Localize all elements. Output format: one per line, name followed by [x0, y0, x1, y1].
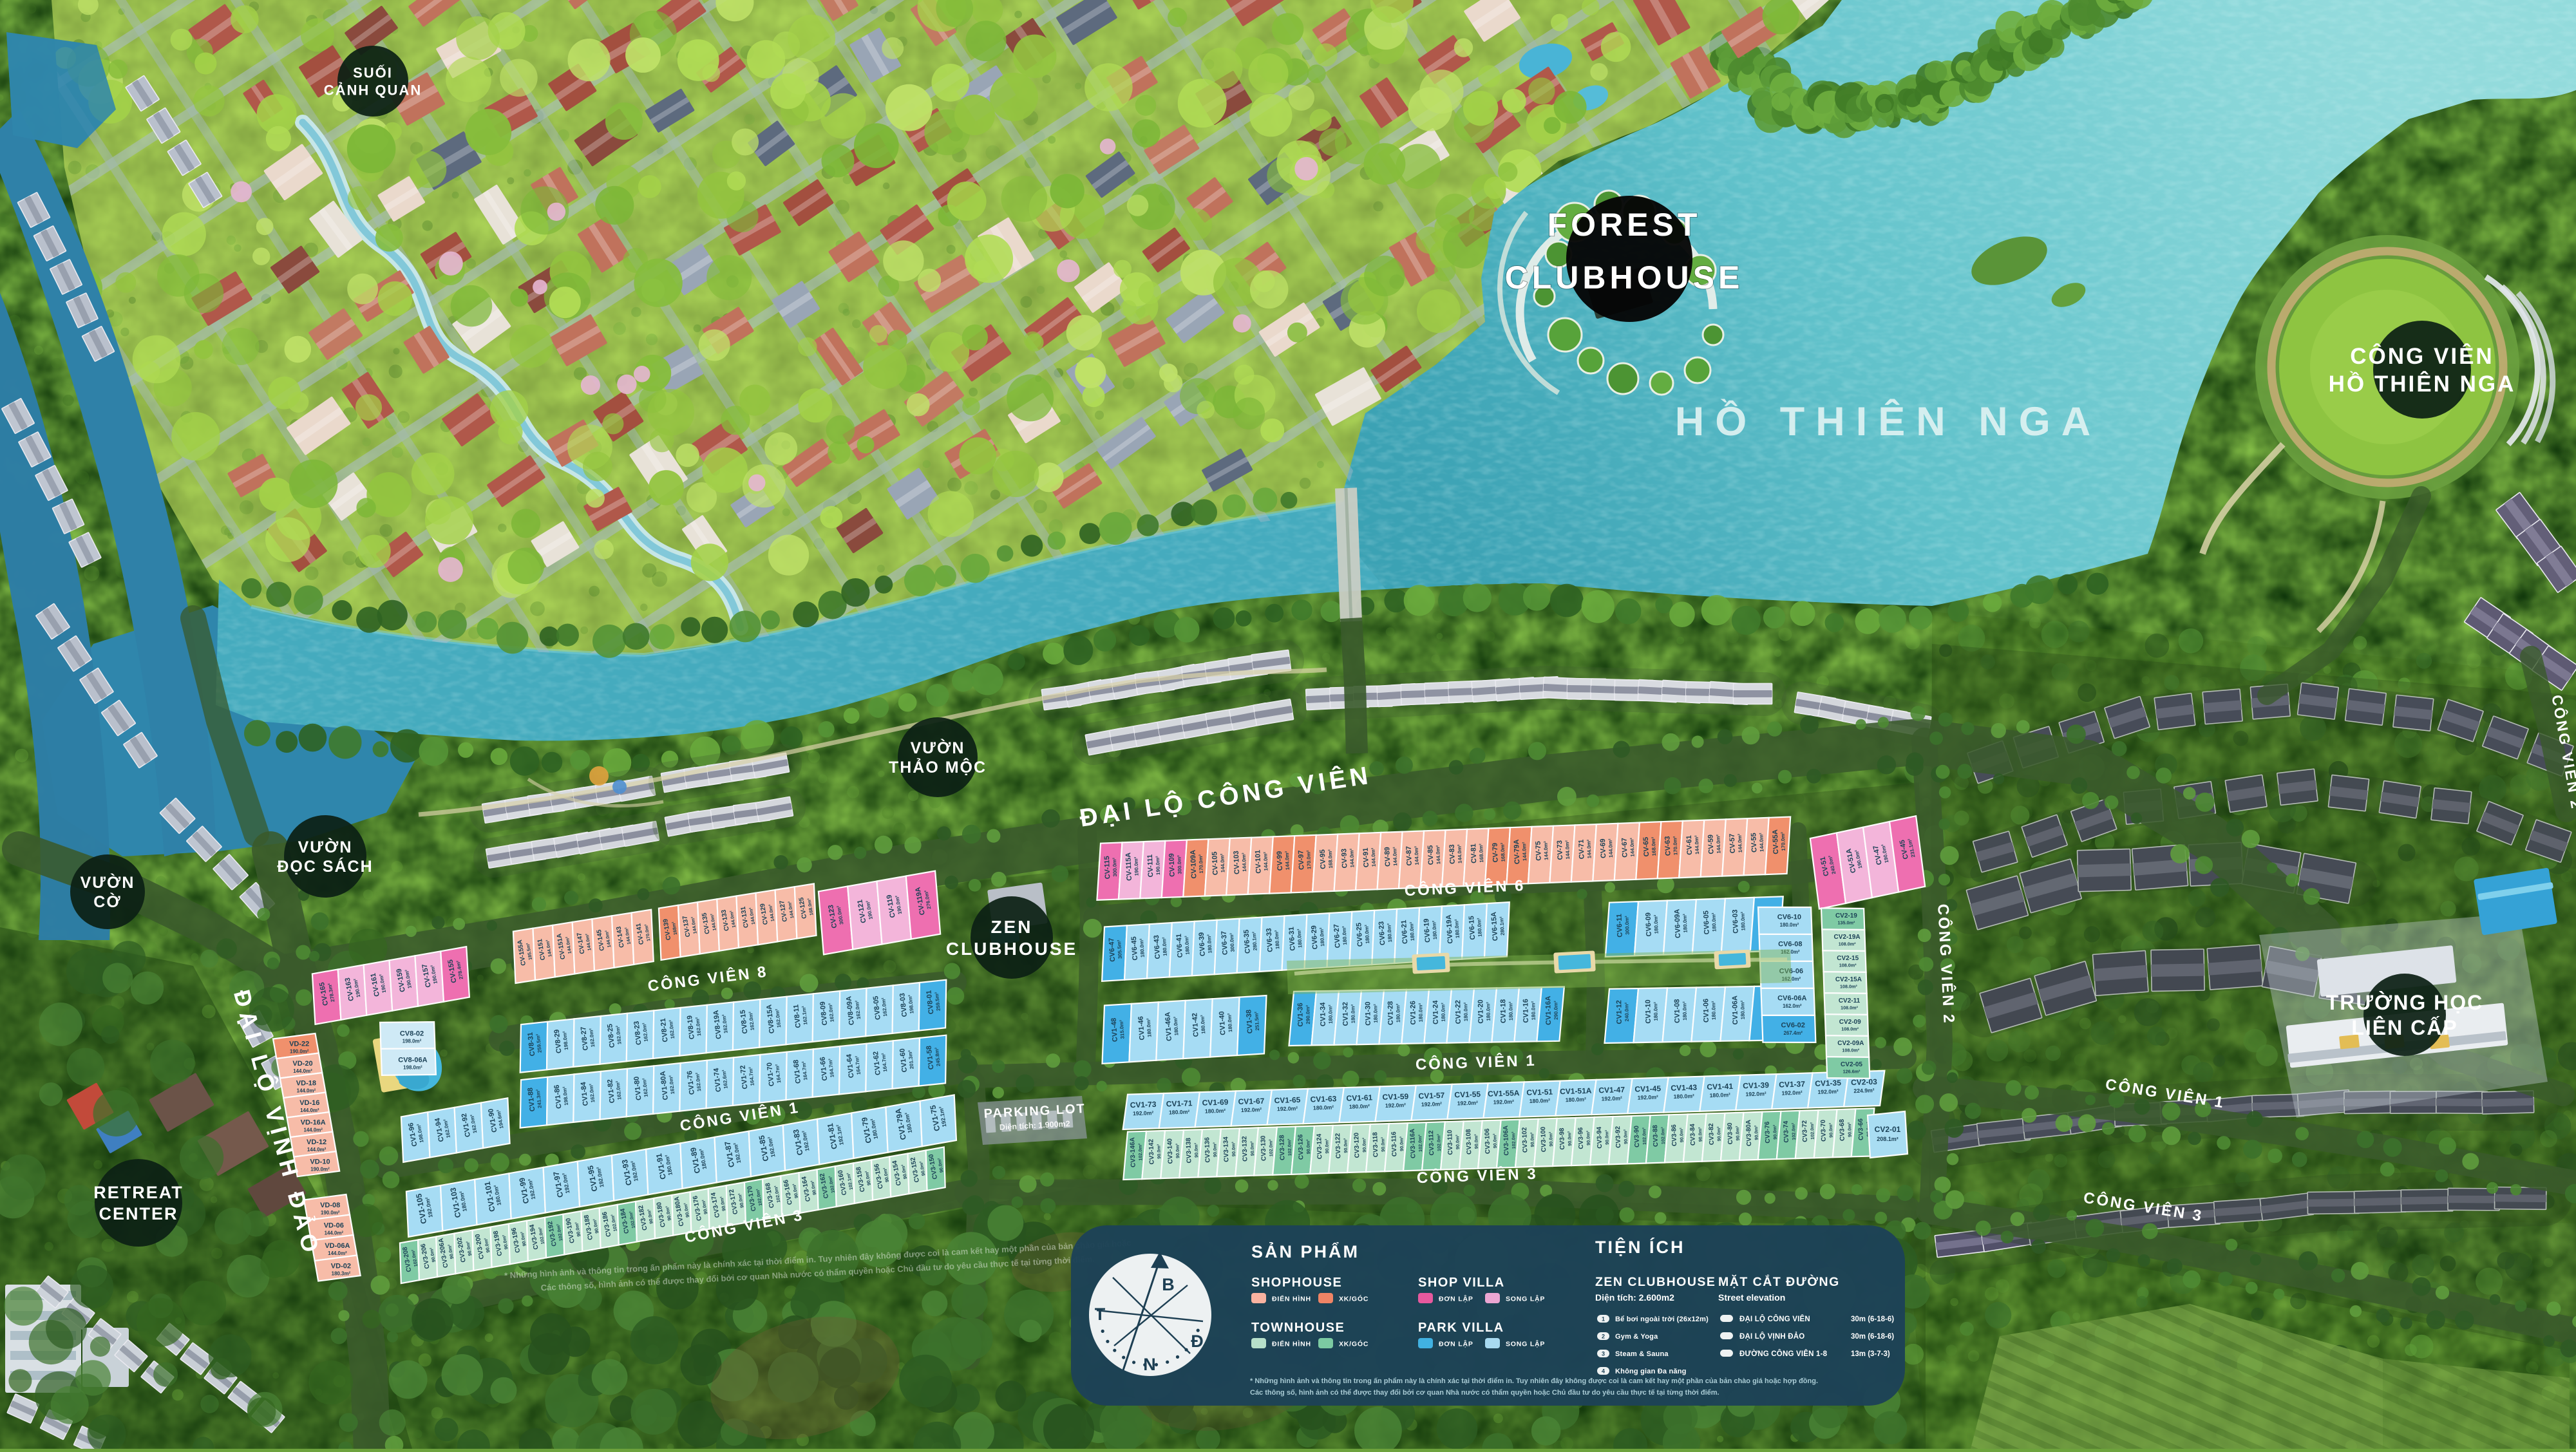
svg-text:180.0m²: 180.0m²: [1681, 1001, 1688, 1021]
svg-text:180.0m²: 180.0m²: [1463, 1002, 1469, 1021]
svg-text:CV-57: CV-57: [1728, 833, 1737, 853]
svg-text:102.0m²: 102.0m²: [1660, 1127, 1666, 1145]
svg-text:180.0m²: 180.0m²: [1327, 1004, 1334, 1024]
svg-text:108.0m²: 108.0m²: [1842, 1047, 1859, 1053]
svg-text:CV3-90: CV3-90: [1633, 1125, 1641, 1147]
svg-text:102.0m²: 102.0m²: [1417, 1134, 1423, 1152]
svg-text:13m (3-7-3): 13m (3-7-3): [1851, 1350, 1890, 1358]
svg-text:144.0m²: 144.0m²: [1349, 848, 1355, 867]
svg-text:* Những hình ảnh và thông tin: * Những hình ảnh và thông tin trong ấn p…: [1250, 1377, 1818, 1385]
svg-text:251.5m²: 251.5m²: [1253, 1012, 1260, 1031]
svg-text:XK/GÓC: XK/GÓC: [1339, 1340, 1368, 1348]
svg-text:CV-67: CV-67: [1621, 838, 1629, 858]
svg-text:CV-109A: CV-109A: [1189, 850, 1198, 879]
svg-text:ĐƠN LẬP: ĐƠN LẬP: [1439, 1295, 1473, 1303]
svg-text:TRƯỜNG HỌC: TRƯỜNG HỌC: [2326, 991, 2484, 1014]
svg-text:CV3-116A: CV3-116A: [1409, 1129, 1417, 1158]
svg-text:180.0m²: 180.0m²: [1529, 1097, 1551, 1104]
svg-text:192.0m²: 192.0m²: [1601, 1095, 1622, 1102]
svg-text:CV6-19: CV6-19: [1423, 918, 1432, 943]
svg-text:126.6m²: 126.6m²: [1843, 1068, 1861, 1074]
svg-text:CV1-59: CV1-59: [1382, 1092, 1408, 1102]
svg-text:CV2-11: CV2-11: [1839, 997, 1861, 1004]
svg-text:CV2-05: CV2-05: [1841, 1061, 1862, 1068]
svg-text:CV-69: CV-69: [1599, 838, 1607, 858]
svg-text:190.0m²: 190.0m²: [290, 1049, 309, 1055]
svg-text:102.0m²: 102.0m²: [1435, 1133, 1442, 1151]
svg-text:180.0m²: 180.0m²: [1200, 1015, 1207, 1034]
svg-text:VD-22: VD-22: [289, 1041, 309, 1048]
svg-text:CẢNH QUAN: CẢNH QUAN: [324, 82, 422, 98]
svg-text:CV3-82: CV3-82: [1708, 1123, 1716, 1146]
svg-text:CV1-51A: CV1-51A: [1560, 1086, 1592, 1097]
svg-text:90.0m²: 90.0m²: [1398, 1136, 1405, 1151]
svg-text:CV1-16A: CV1-16A: [1544, 995, 1553, 1024]
svg-text:180.0m²: 180.0m²: [1530, 1001, 1537, 1020]
svg-text:CV-71: CV-71: [1578, 839, 1586, 859]
svg-text:180.0m²: 180.0m²: [1673, 1093, 1694, 1100]
svg-text:VD-18: VD-18: [296, 1080, 316, 1088]
svg-text:CV-85: CV-85: [1426, 845, 1435, 865]
svg-text:168.0m²: 168.0m²: [1478, 844, 1484, 863]
svg-text:CV3-80: CV3-80: [1727, 1122, 1734, 1145]
svg-text:170.0m²: 170.0m²: [1672, 836, 1678, 855]
svg-text:180.0m²: 180.0m²: [1341, 926, 1348, 945]
svg-text:CV3-106: CV3-106: [1484, 1128, 1492, 1154]
svg-text:CV1-28: CV1-28: [1387, 1001, 1395, 1026]
svg-text:192.0m²: 192.0m²: [1745, 1090, 1766, 1097]
svg-text:108.0m²: 108.0m²: [1839, 941, 1856, 947]
svg-text:VD-12: VD-12: [307, 1138, 327, 1146]
svg-text:VD-02: VD-02: [331, 1263, 351, 1270]
svg-text:CV3-86: CV3-86: [1671, 1124, 1678, 1147]
svg-text:CV1-34: CV1-34: [1319, 1002, 1327, 1026]
svg-text:CV-87: CV-87: [1405, 846, 1414, 866]
svg-text:190.0m²: 190.0m²: [310, 1167, 330, 1173]
svg-text:102.0m²: 102.0m²: [1137, 1143, 1144, 1161]
svg-text:TIỆN ÍCH: TIỆN ÍCH: [1595, 1237, 1685, 1257]
svg-text:TOWNHOUSE: TOWNHOUSE: [1251, 1321, 1345, 1335]
svg-text:144.0m²: 144.0m²: [307, 1147, 327, 1153]
svg-text:CV8-06A: CV8-06A: [398, 1057, 427, 1064]
svg-text:CV6-31: CV6-31: [1287, 927, 1296, 951]
svg-text:CV3-92: CV3-92: [1615, 1126, 1622, 1148]
svg-text:Diện tích: 2.600m2: Diện tích: 2.600m2: [1595, 1292, 1674, 1303]
svg-text:CV2-15A: CV2-15A: [1835, 976, 1862, 983]
svg-text:144.0m²: 144.0m²: [1737, 833, 1743, 853]
svg-text:CV6-33: CV6-33: [1265, 928, 1274, 952]
svg-text:180.0m²: 180.0m²: [1709, 1091, 1730, 1098]
svg-text:CV1-55A: CV1-55A: [1488, 1088, 1520, 1098]
svg-text:168.0m²: 168.0m²: [1651, 836, 1657, 856]
svg-text:CV-59: CV-59: [1707, 834, 1715, 854]
svg-text:192.0m²: 192.0m²: [1385, 1102, 1406, 1109]
svg-text:CV1-37: CV1-37: [1779, 1079, 1805, 1089]
svg-text:90.0m²: 90.0m²: [1697, 1127, 1703, 1142]
svg-text:CV1-16: CV1-16: [1522, 999, 1530, 1023]
svg-text:RETREAT: RETREAT: [93, 1183, 184, 1202]
svg-text:PARK VILLA: PARK VILLA: [1418, 1321, 1504, 1335]
svg-text:90.0m²: 90.0m²: [1622, 1129, 1629, 1144]
svg-text:FOREST: FOREST: [1548, 207, 1701, 243]
svg-text:192.0m²: 192.0m²: [1781, 1089, 1803, 1097]
svg-text:CV-103: CV-103: [1233, 851, 1241, 874]
svg-text:CV-105: CV-105: [1211, 851, 1219, 875]
svg-text:CV6-25: CV6-25: [1355, 923, 1364, 947]
svg-text:ĐƠN LẬP: ĐƠN LẬP: [1439, 1340, 1473, 1348]
svg-text:180.0m²: 180.0m²: [1363, 925, 1370, 944]
svg-text:180.0m²: 180.0m²: [1739, 1000, 1746, 1019]
svg-text:CV6-29: CV6-29: [1310, 925, 1319, 950]
svg-text:CV-109: CV-109: [1168, 853, 1176, 877]
svg-text:ĐƯỜNG CÔNG VIÊN 1-8: ĐƯỜNG CÔNG VIÊN 1-8: [1739, 1350, 1828, 1358]
svg-text:CV2-15: CV2-15: [1837, 955, 1859, 962]
svg-text:90.0m²: 90.0m²: [1305, 1139, 1311, 1155]
svg-text:SHOP VILLA: SHOP VILLA: [1418, 1276, 1505, 1290]
svg-text:CV6-47: CV6-47: [1108, 938, 1117, 962]
svg-text:CV3-108: CV3-108: [1465, 1129, 1473, 1155]
svg-text:CV3-118: CV3-118: [1372, 1132, 1379, 1158]
svg-text:208.1m²: 208.1m²: [1877, 1136, 1899, 1142]
svg-text:180.0m²: 180.0m²: [1173, 1016, 1180, 1035]
svg-text:108.0m²: 108.0m²: [1839, 962, 1857, 968]
svg-text:CV3-128: CV3-128: [1278, 1135, 1286, 1160]
svg-text:CV3-112: CV3-112: [1428, 1130, 1435, 1156]
svg-text:CV3-132: CV3-132: [1241, 1136, 1249, 1162]
svg-text:T: T: [1095, 1305, 1106, 1324]
svg-text:CV1-41: CV1-41: [1707, 1082, 1733, 1091]
svg-text:B: B: [1162, 1275, 1175, 1294]
svg-text:CÔNG VIÊN: CÔNG VIÊN: [2350, 343, 2494, 369]
svg-text:168.0m²: 168.0m²: [1500, 842, 1506, 862]
svg-text:30m (6-18-6): 30m (6-18-6): [1851, 1333, 1894, 1341]
svg-text:CV1-10: CV1-10: [1644, 999, 1653, 1024]
svg-text:30m (6-18-6): 30m (6-18-6): [1851, 1315, 1894, 1323]
svg-text:224.9m²: 224.9m²: [1853, 1087, 1875, 1094]
svg-text:180.0m²: 180.0m²: [1485, 1002, 1492, 1021]
svg-text:CV6-10: CV6-10: [1777, 914, 1801, 921]
svg-text:CV-79: CV-79: [1492, 843, 1500, 863]
svg-text:180.0m²: 180.0m²: [1417, 1003, 1424, 1022]
svg-text:CV1-30: CV1-30: [1364, 1001, 1372, 1026]
svg-text:CV-99: CV-99: [1276, 851, 1284, 871]
svg-text:90.0m²: 90.0m²: [1678, 1127, 1685, 1143]
svg-text:280.1m²: 280.1m²: [1251, 931, 1258, 950]
svg-text:CV3-138: CV3-138: [1185, 1137, 1193, 1163]
svg-text:Street elevation: Street elevation: [1718, 1292, 1785, 1303]
svg-text:90.0m²: 90.0m²: [1604, 1129, 1610, 1145]
svg-text:CV6-15: CV6-15: [1468, 916, 1477, 940]
svg-text:CV3-110: CV3-110: [1446, 1129, 1454, 1155]
svg-text:CV6-23: CV6-23: [1378, 921, 1387, 945]
svg-text:CV1-55: CV1-55: [1454, 1089, 1481, 1099]
svg-text:VD-10: VD-10: [310, 1158, 330, 1166]
svg-text:144.0m²: 144.0m²: [328, 1250, 347, 1256]
svg-text:CV3-84: CV3-84: [1689, 1124, 1697, 1146]
svg-text:ĐIỂN HÌNH: ĐIỂN HÌNH: [1272, 1295, 1311, 1303]
svg-text:CV2-19A: CV2-19A: [1834, 934, 1861, 941]
svg-text:170.0m²: 170.0m²: [1780, 832, 1786, 851]
svg-text:180.0m²: 180.0m²: [1350, 1004, 1356, 1023]
svg-text:90.0m²: 90.0m²: [1175, 1143, 1181, 1158]
svg-text:144.0m²: 144.0m²: [1629, 838, 1636, 857]
svg-text:102.0m²: 102.0m²: [1286, 1138, 1293, 1156]
svg-text:102.0m²: 102.0m²: [1510, 1131, 1517, 1149]
svg-text:CV-93: CV-93: [1340, 849, 1349, 869]
svg-text:CV1-32: CV1-32: [1341, 1002, 1350, 1026]
svg-text:CV2-01: CV2-01: [1875, 1125, 1901, 1134]
svg-text:90.0m²: 90.0m²: [1585, 1130, 1591, 1146]
svg-text:290.0m²: 290.0m²: [1553, 1001, 1559, 1020]
svg-text:144.0m²: 144.0m²: [1564, 840, 1571, 860]
svg-text:HỒ THIÊN NGA: HỒ THIÊN NGA: [2329, 371, 2516, 397]
svg-text:192.0m²: 192.0m²: [1817, 1088, 1839, 1095]
svg-text:CV6-37: CV6-37: [1220, 930, 1229, 955]
svg-text:144.0m²: 144.0m²: [1219, 853, 1226, 872]
svg-text:CV1-73: CV1-73: [1130, 1100, 1157, 1109]
svg-text:Gym & Yoga: Gym & Yoga: [1615, 1333, 1658, 1341]
svg-text:CV-75: CV-75: [1535, 841, 1543, 861]
svg-text:CV1-65: CV1-65: [1274, 1095, 1300, 1105]
svg-text:108.0m²: 108.0m²: [1840, 983, 1857, 989]
svg-text:180.0m²: 180.0m²: [1372, 1004, 1379, 1023]
svg-text:90.0m²: 90.0m²: [1379, 1136, 1386, 1152]
svg-text:180.0m²: 180.0m²: [1313, 1104, 1334, 1111]
svg-text:300.0m²: 300.0m²: [1624, 916, 1631, 935]
svg-text:180.0m²: 180.0m²: [1653, 914, 1660, 934]
svg-text:CV1-40: CV1-40: [1218, 1011, 1227, 1035]
svg-text:180.0m²: 180.0m²: [1139, 938, 1146, 957]
svg-text:CV1-71: CV1-71: [1166, 1098, 1193, 1108]
svg-text:CV-115A: CV-115A: [1124, 853, 1133, 882]
svg-text:300.0m²: 300.0m²: [1112, 858, 1118, 877]
svg-text:CV-61: CV-61: [1685, 835, 1694, 855]
svg-text:CV3-72: CV3-72: [1801, 1120, 1809, 1142]
svg-text:144.0m²: 144.0m²: [1262, 852, 1269, 871]
svg-text:192.0m²: 192.0m²: [1421, 1100, 1443, 1108]
svg-text:144.0m²: 144.0m²: [1543, 841, 1549, 860]
svg-text:90.0m²: 90.0m²: [1323, 1138, 1330, 1154]
svg-text:CV3-102: CV3-102: [1521, 1127, 1529, 1153]
svg-text:CV-89: CV-89: [1383, 847, 1392, 867]
svg-text:CV1-57: CV1-57: [1418, 1091, 1444, 1100]
svg-text:90.0m²: 90.0m²: [1548, 1131, 1554, 1147]
svg-text:90.0m²: 90.0m²: [1156, 1144, 1162, 1159]
svg-text:CV3-130: CV3-130: [1260, 1135, 1267, 1161]
svg-text:180.0m²: 180.0m²: [1408, 921, 1416, 941]
svg-text:180.0m²: 180.0m²: [1780, 922, 1799, 928]
svg-text:180.0m²: 180.0m²: [1476, 918, 1483, 937]
svg-text:280.1m²: 280.1m²: [1499, 916, 1506, 936]
svg-text:CV1-69: CV1-69: [1202, 1097, 1228, 1107]
svg-text:190.0m²: 190.0m²: [1133, 856, 1140, 876]
svg-text:CV1-22: CV1-22: [1454, 1000, 1463, 1024]
svg-text:315.0m²: 315.0m²: [1119, 1019, 1126, 1039]
svg-text:192.0m²: 192.0m²: [1277, 1105, 1298, 1112]
svg-text:90.0m²: 90.0m²: [1473, 1134, 1479, 1149]
svg-text:180.0m²: 180.0m²: [1566, 1096, 1587, 1103]
svg-text:Các thông số, hình ảnh có thể: Các thông số, hình ảnh có thể được thay …: [1250, 1389, 1719, 1397]
svg-text:90.0m²: 90.0m²: [1492, 1133, 1498, 1149]
svg-text:180.0m²: 180.0m²: [1274, 930, 1281, 949]
svg-text:CV2-09: CV2-09: [1839, 1019, 1861, 1026]
svg-text:192.0m²: 192.0m²: [1133, 1109, 1154, 1117]
svg-text:CV-111: CV-111: [1146, 854, 1155, 878]
svg-text:CV1-35: CV1-35: [1815, 1079, 1841, 1088]
svg-text:90.0m²: 90.0m²: [1231, 1142, 1237, 1157]
svg-text:CV-55A: CV-55A: [1772, 829, 1780, 854]
svg-text:VD-16A: VD-16A: [301, 1119, 326, 1127]
svg-text:4: 4: [1602, 1368, 1605, 1375]
svg-text:CV3-74: CV3-74: [1783, 1120, 1790, 1143]
svg-text:VD-08: VD-08: [320, 1202, 340, 1209]
svg-text:90.0m²: 90.0m²: [1249, 1141, 1256, 1156]
svg-text:180.0m²: 180.0m²: [1146, 1018, 1153, 1037]
svg-text:CV3-120: CV3-120: [1353, 1132, 1361, 1158]
svg-text:CV6-02: CV6-02: [1781, 1022, 1805, 1030]
svg-text:180.0m²: 180.0m²: [1682, 914, 1689, 933]
svg-text:CV6-21: CV6-21: [1400, 919, 1409, 944]
svg-text:SẢN PHẨM: SẢN PHẨM: [1251, 1241, 1359, 1261]
svg-text:THẢO MỘC: THẢO MỘC: [889, 757, 987, 777]
svg-text:CV3-124: CV3-124: [1316, 1133, 1323, 1159]
svg-text:180.0m²: 180.0m²: [1169, 1109, 1190, 1116]
svg-text:198.0m²: 198.0m²: [403, 1065, 422, 1071]
svg-text:305.5m²: 305.5m²: [1116, 939, 1123, 959]
svg-text:90.0m²: 90.0m²: [1828, 1122, 1834, 1138]
svg-text:CV6-09: CV6-09: [1645, 912, 1653, 937]
svg-text:SUỐI: SUỐI: [353, 64, 393, 81]
svg-text:180.0m²: 180.0m²: [1161, 937, 1168, 956]
svg-text:CV1-45: CV1-45: [1634, 1084, 1661, 1093]
svg-text:162.0m²: 162.0m²: [1783, 1003, 1802, 1009]
svg-text:144.0m²: 144.0m²: [1414, 846, 1420, 865]
svg-text:CV3-116: CV3-116: [1390, 1131, 1398, 1157]
svg-text:CV6-39: CV6-39: [1198, 932, 1207, 957]
svg-text:300.0m²: 300.0m²: [1177, 855, 1183, 874]
svg-text:267.4m²: 267.4m²: [1783, 1030, 1803, 1036]
svg-text:CV3-106A: CV3-106A: [1502, 1126, 1510, 1156]
svg-text:CV3-136: CV3-136: [1204, 1137, 1211, 1163]
svg-text:CỜ: CỜ: [93, 892, 121, 911]
svg-text:90.0m²: 90.0m²: [1772, 1124, 1778, 1140]
svg-text:Không gian Đa năng: Không gian Đa năng: [1615, 1368, 1687, 1375]
svg-text:108.0m²: 108.0m²: [1841, 1004, 1858, 1010]
svg-text:VƯỜN: VƯỜN: [298, 837, 353, 856]
svg-text:170.0m²: 170.0m²: [1305, 850, 1312, 869]
svg-text:CV1-67: CV1-67: [1238, 1097, 1264, 1106]
svg-text:144.0m²: 144.0m²: [303, 1127, 323, 1133]
svg-text:CV1-47: CV1-47: [1598, 1085, 1625, 1095]
svg-text:180.0m²: 180.0m²: [1440, 1003, 1446, 1022]
svg-text:CV3-70: CV3-70: [1820, 1119, 1828, 1142]
svg-text:90.0m²: 90.0m²: [1734, 1126, 1741, 1141]
svg-text:CV1-06A: CV1-06A: [1731, 995, 1739, 1024]
svg-text:CV-97: CV-97: [1297, 850, 1305, 870]
svg-text:90.0m²: 90.0m²: [1454, 1135, 1461, 1150]
svg-text:CV-115: CV-115: [1103, 856, 1112, 880]
svg-text:90.0m²: 90.0m²: [1753, 1125, 1759, 1140]
svg-text:LIÊN CẤP: LIÊN CẤP: [2351, 1016, 2458, 1039]
svg-text:90.0m²: 90.0m²: [1566, 1131, 1573, 1146]
svg-text:CV6-09A: CV6-09A: [1673, 909, 1682, 938]
svg-text:CV6-05: CV6-05: [1702, 910, 1710, 935]
svg-text:CV-65: CV-65: [1642, 837, 1651, 857]
svg-text:CV3-142: CV3-142: [1148, 1138, 1155, 1164]
svg-text:CV1-63: CV1-63: [1310, 1094, 1336, 1104]
svg-text:VƯỜN: VƯỜN: [911, 738, 965, 757]
svg-text:102.0m²: 102.0m²: [1267, 1139, 1274, 1157]
svg-text:180.3m²: 180.3m²: [332, 1271, 351, 1277]
svg-text:192.0m²: 192.0m²: [1493, 1098, 1515, 1106]
svg-text:192.0m²: 192.0m²: [1637, 1094, 1658, 1101]
svg-text:CV3-76: CV3-76: [1764, 1121, 1772, 1144]
svg-text:180.0m²: 180.0m²: [1226, 1013, 1233, 1032]
svg-text:CV3-66: CV3-66: [1857, 1118, 1865, 1140]
svg-text:CV6-11: CV6-11: [1616, 914, 1624, 938]
svg-text:CV1-43: CV1-43: [1671, 1083, 1697, 1093]
svg-text:90.0m²: 90.0m²: [1212, 1142, 1218, 1157]
svg-text:90.0m²: 90.0m²: [1342, 1138, 1349, 1153]
svg-text:CV3-98: CV3-98: [1558, 1127, 1566, 1150]
svg-text:CV-91: CV-91: [1362, 847, 1370, 867]
svg-text:144.0m²: 144.0m²: [325, 1230, 344, 1236]
svg-text:VƯỜN: VƯỜN: [80, 872, 135, 892]
svg-text:VD-16: VD-16: [299, 1099, 319, 1107]
svg-text:CV3-122: CV3-122: [1334, 1133, 1342, 1158]
svg-text:180.0m²: 180.0m²: [1740, 912, 1747, 931]
svg-text:VD-06A: VD-06A: [325, 1242, 350, 1250]
svg-text:180.0m²: 180.0m²: [1386, 923, 1393, 942]
svg-text:CV-101: CV-101: [1254, 850, 1262, 874]
svg-text:90.0m²: 90.0m²: [1361, 1137, 1367, 1153]
svg-text:144.0m²: 144.0m²: [1284, 851, 1291, 870]
svg-text:CV6-35: CV6-35: [1243, 929, 1252, 954]
svg-text:CV-83: CV-83: [1448, 844, 1457, 864]
svg-text:SONG LẬP: SONG LẬP: [1506, 1340, 1545, 1348]
svg-text:180.0m²: 180.0m²: [1319, 927, 1326, 947]
svg-text:ĐẠI LỘ CÔNG VIÊN: ĐẠI LỘ CÔNG VIÊN: [1739, 1315, 1810, 1323]
svg-text:CV-81: CV-81: [1470, 844, 1478, 863]
svg-text:180.0m²: 180.0m²: [1184, 936, 1191, 955]
svg-text:CV1-36: CV1-36: [1296, 1003, 1305, 1027]
svg-text:144.0m²: 144.0m²: [1435, 845, 1441, 864]
svg-text:Steam & Sauna: Steam & Sauna: [1615, 1350, 1669, 1358]
svg-text:CV1-18: CV1-18: [1499, 999, 1508, 1024]
svg-text:CV1-46: CV1-46: [1137, 1016, 1146, 1041]
svg-text:90.0m²: 90.0m²: [1193, 1142, 1200, 1158]
svg-text:144.0m²: 144.0m²: [1758, 833, 1765, 852]
svg-text:180.0m²: 180.0m²: [1711, 912, 1718, 932]
svg-text:Bể bơi ngoài trời (26x12m): Bể bơi ngoài trời (26x12m): [1615, 1315, 1709, 1323]
svg-text:CV3-140: CV3-140: [1166, 1138, 1174, 1164]
svg-text:SHOPHOUSE: SHOPHOUSE: [1251, 1276, 1342, 1290]
svg-text:290.0m²: 290.0m²: [1305, 1005, 1311, 1024]
svg-text:CV6-45: CV6-45: [1130, 936, 1139, 961]
svg-text:144.0m²: 144.0m²: [293, 1068, 312, 1074]
svg-text:240.0m²: 240.0m²: [1624, 1002, 1630, 1021]
svg-text:CV3-146A: CV3-146A: [1129, 1137, 1137, 1167]
svg-text:CV1-48: CV1-48: [1110, 1017, 1119, 1042]
svg-text:CV3-94: CV3-94: [1596, 1126, 1604, 1149]
svg-text:CENTER: CENTER: [99, 1204, 178, 1223]
svg-text:180.0m²: 180.0m²: [1508, 1001, 1514, 1021]
svg-text:192.0m²: 192.0m²: [1457, 1099, 1479, 1106]
svg-text:102.0m²: 102.0m²: [1790, 1122, 1797, 1140]
svg-text:102.0m²: 102.0m²: [1809, 1122, 1815, 1140]
svg-text:180.0m²: 180.0m²: [1349, 1103, 1370, 1110]
svg-text:1: 1: [1602, 1316, 1605, 1323]
